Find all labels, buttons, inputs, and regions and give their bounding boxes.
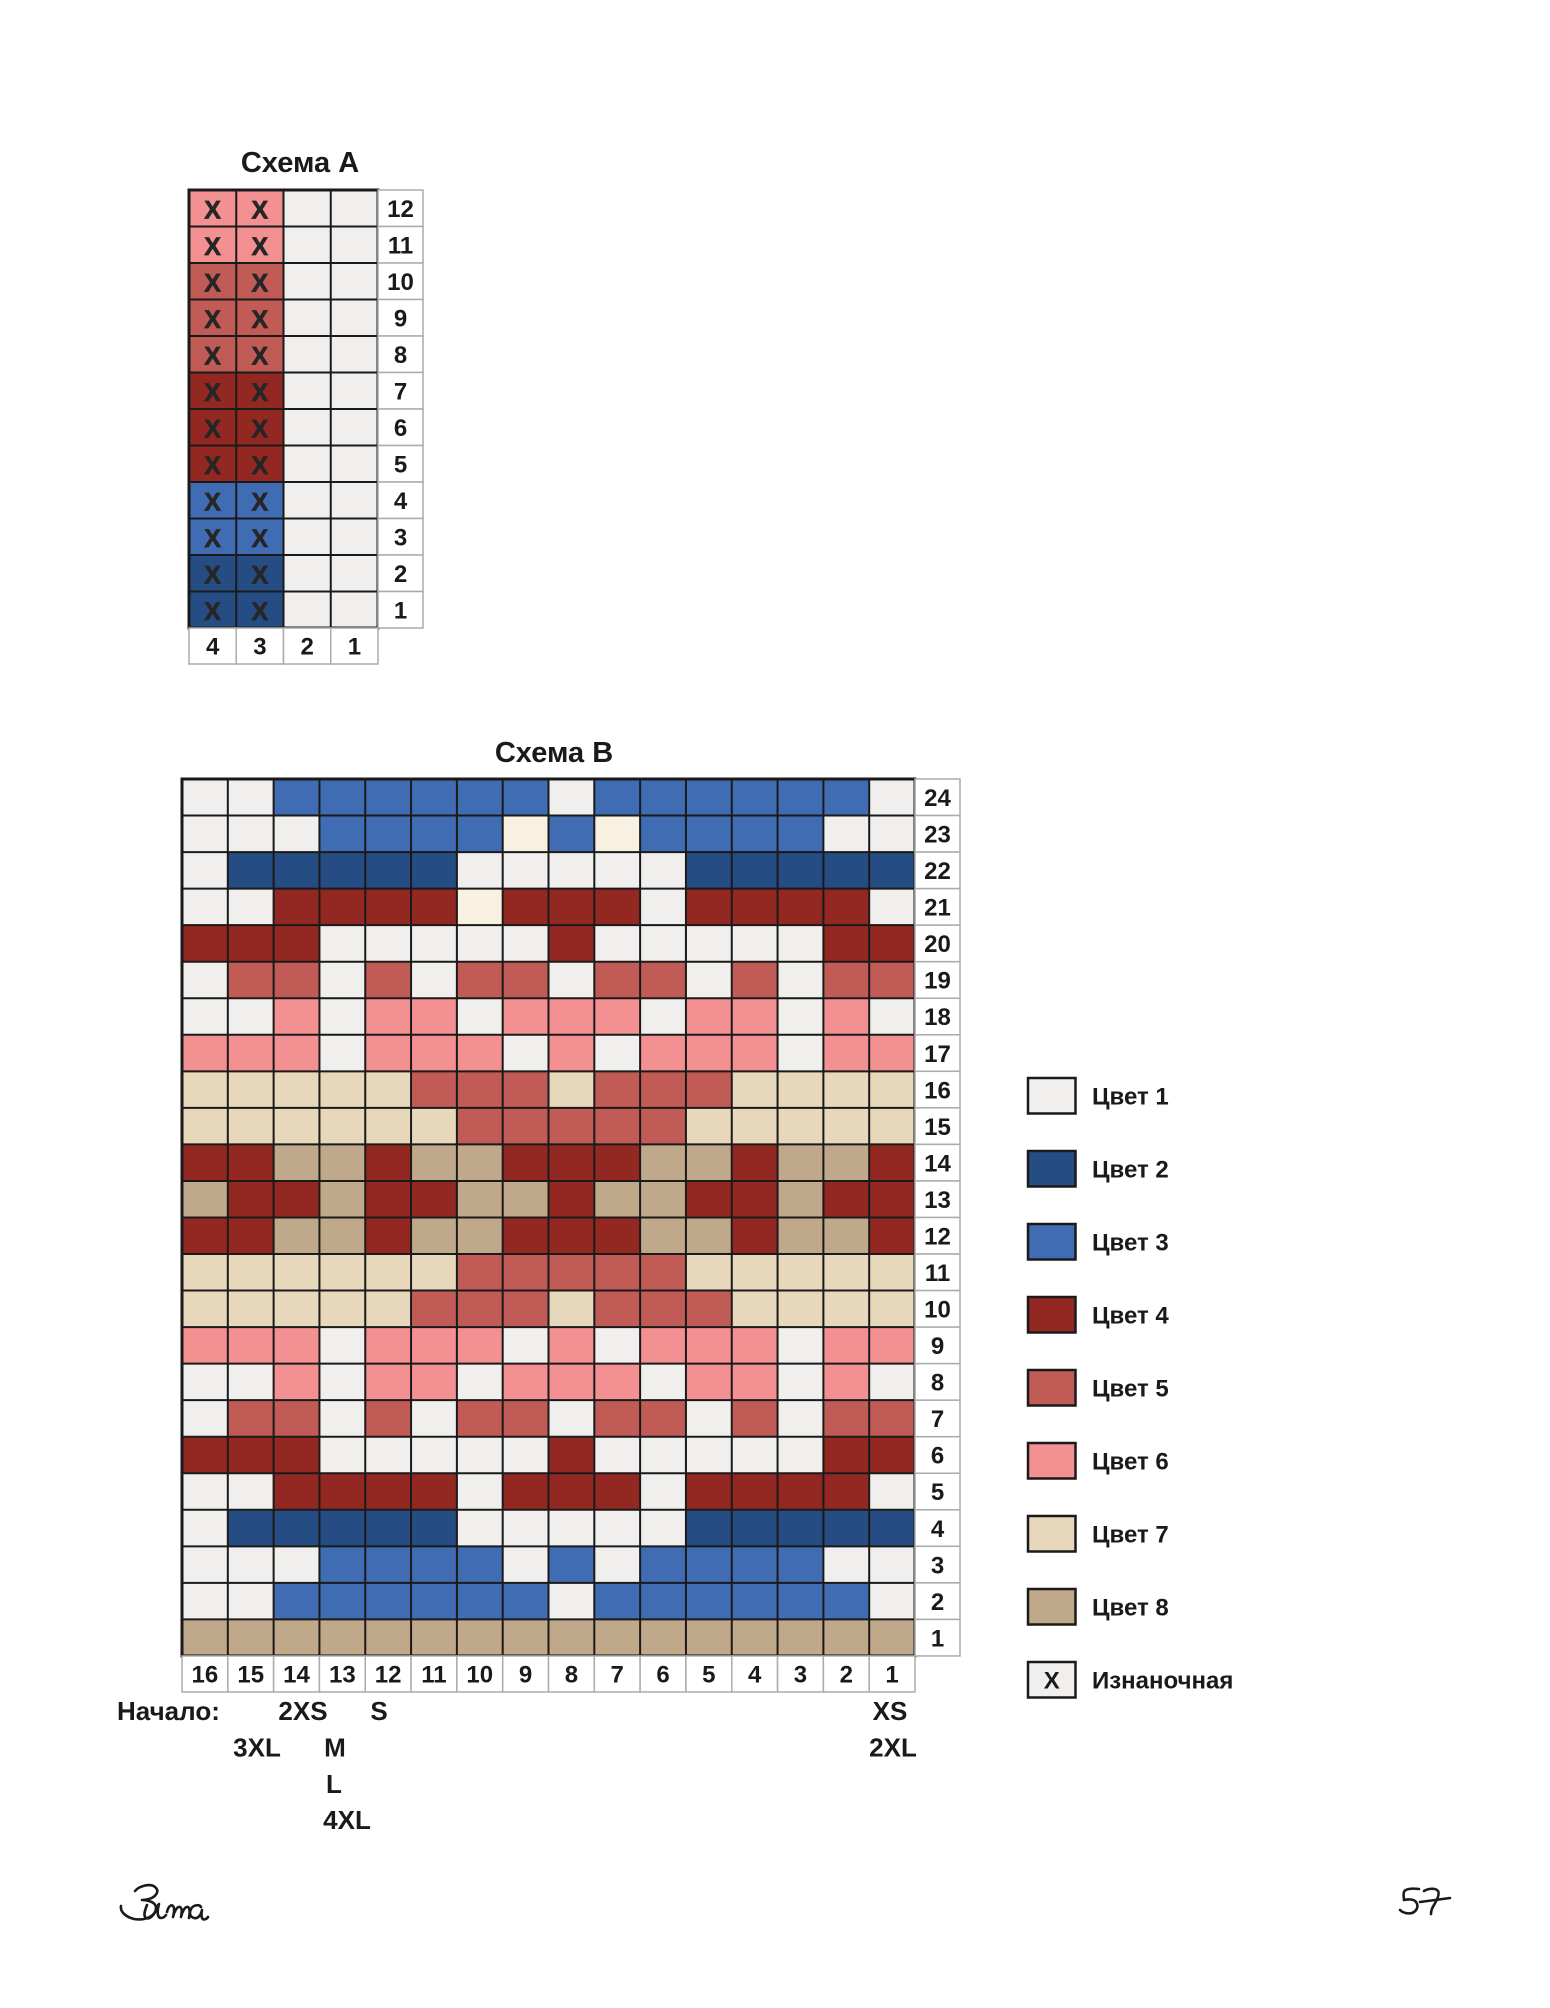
svg-text:X: X: [252, 379, 269, 407]
svg-text:Цвет 8: Цвет 8: [1092, 1594, 1169, 1621]
svg-text:14: 14: [283, 1662, 310, 1689]
svg-text:3: 3: [931, 1552, 944, 1579]
svg-text:16: 16: [192, 1662, 219, 1689]
svg-text:12: 12: [387, 196, 414, 223]
svg-text:16: 16: [924, 1077, 951, 1104]
svg-text:17: 17: [924, 1041, 951, 1068]
svg-text:X: X: [204, 270, 221, 298]
svg-text:6: 6: [394, 415, 407, 442]
svg-text:2: 2: [840, 1662, 853, 1689]
svg-text:Изнаночная: Изнаночная: [1092, 1667, 1233, 1694]
svg-text:18: 18: [924, 1004, 951, 1031]
svg-text:2: 2: [394, 561, 407, 588]
svg-text:X: X: [252, 452, 269, 480]
svg-text:M: M: [324, 1733, 346, 1763]
svg-text:X: X: [252, 489, 269, 517]
svg-text:4: 4: [394, 488, 408, 515]
svg-text:4: 4: [206, 634, 220, 661]
svg-text:Цвет 3: Цвет 3: [1092, 1229, 1169, 1256]
svg-text:X: X: [252, 562, 269, 590]
svg-text:10: 10: [466, 1662, 493, 1689]
svg-text:11: 11: [421, 1662, 446, 1689]
svg-text:24: 24: [924, 785, 951, 812]
svg-text:2: 2: [931, 1589, 944, 1616]
svg-text:Цвет 5: Цвет 5: [1092, 1375, 1169, 1402]
svg-text:13: 13: [924, 1187, 951, 1214]
svg-text:9: 9: [394, 305, 407, 332]
svg-text:19: 19: [924, 968, 951, 995]
svg-text:X: X: [1044, 1667, 1060, 1694]
svg-text:4XL: 4XL: [323, 1805, 371, 1835]
svg-text:X: X: [204, 379, 221, 407]
svg-text:20: 20: [924, 931, 951, 958]
svg-text:8: 8: [394, 342, 407, 369]
svg-text:X: X: [252, 270, 269, 298]
svg-text:5: 5: [931, 1479, 944, 1506]
svg-text:X: X: [252, 306, 269, 334]
svg-text:S: S: [370, 1696, 387, 1726]
svg-text:XS: XS: [873, 1696, 908, 1726]
svg-text:X: X: [204, 306, 221, 334]
svg-text:12: 12: [375, 1662, 402, 1689]
svg-text:1: 1: [885, 1662, 898, 1689]
svg-text:11: 11: [925, 1260, 950, 1287]
svg-text:15: 15: [237, 1662, 264, 1689]
svg-text:X: X: [204, 598, 221, 626]
svg-text:14: 14: [924, 1150, 951, 1177]
svg-text:4: 4: [931, 1516, 945, 1543]
svg-text:11: 11: [388, 232, 413, 259]
svg-text:Цвет 4: Цвет 4: [1092, 1302, 1169, 1329]
svg-text:1: 1: [394, 597, 407, 624]
svg-text:6: 6: [656, 1662, 669, 1689]
svg-text:X: X: [204, 562, 221, 590]
svg-text:23: 23: [924, 822, 951, 849]
svg-text:3: 3: [794, 1662, 807, 1689]
svg-text:X: X: [204, 416, 221, 444]
svg-text:3: 3: [253, 634, 266, 661]
svg-text:7: 7: [394, 378, 407, 405]
svg-text:15: 15: [924, 1114, 951, 1141]
svg-text:Цвет 7: Цвет 7: [1092, 1521, 1169, 1548]
svg-text:X: X: [204, 343, 221, 371]
svg-text:X: X: [204, 233, 221, 261]
svg-text:3: 3: [394, 524, 407, 551]
svg-text:9: 9: [519, 1662, 532, 1689]
svg-text:1: 1: [931, 1625, 944, 1652]
svg-text:Цвет 1: Цвет 1: [1092, 1083, 1169, 1110]
svg-text:X: X: [252, 233, 269, 261]
svg-text:X: X: [204, 525, 221, 553]
svg-text:X: X: [252, 598, 269, 626]
svg-text:Схема A: Схема A: [241, 147, 359, 179]
svg-text:5: 5: [394, 451, 407, 478]
svg-text:2: 2: [300, 634, 313, 661]
svg-text:8: 8: [565, 1662, 578, 1689]
svg-text:12: 12: [924, 1223, 951, 1250]
svg-text:10: 10: [387, 269, 414, 296]
svg-text:5: 5: [702, 1662, 715, 1689]
svg-text:Схема B: Схема B: [495, 737, 613, 769]
svg-text:Цвет 6: Цвет 6: [1092, 1448, 1169, 1475]
svg-text:X: X: [204, 489, 221, 517]
svg-text:X: X: [252, 197, 269, 225]
svg-text:9: 9: [931, 1333, 944, 1360]
svg-text:7: 7: [931, 1406, 944, 1433]
svg-text:2XL: 2XL: [869, 1733, 917, 1763]
svg-text:X: X: [252, 525, 269, 553]
svg-text:2XS: 2XS: [278, 1696, 327, 1726]
svg-text:Начало:: Начало:: [117, 1696, 220, 1726]
svg-text:Цвет 2: Цвет 2: [1092, 1156, 1169, 1183]
svg-text:3XL: 3XL: [233, 1733, 281, 1763]
svg-text:X: X: [252, 416, 269, 444]
svg-text:4: 4: [748, 1662, 762, 1689]
svg-text:6: 6: [931, 1443, 944, 1470]
svg-text:13: 13: [329, 1662, 356, 1689]
svg-text:X: X: [252, 343, 269, 371]
svg-text:7: 7: [611, 1662, 624, 1689]
svg-text:L: L: [326, 1769, 342, 1799]
svg-text:1: 1: [348, 634, 361, 661]
svg-text:22: 22: [924, 858, 951, 885]
svg-text:21: 21: [924, 895, 951, 922]
svg-text:X: X: [204, 197, 221, 225]
svg-text:X: X: [204, 452, 221, 480]
svg-text:10: 10: [924, 1297, 951, 1324]
svg-text:8: 8: [931, 1370, 944, 1397]
